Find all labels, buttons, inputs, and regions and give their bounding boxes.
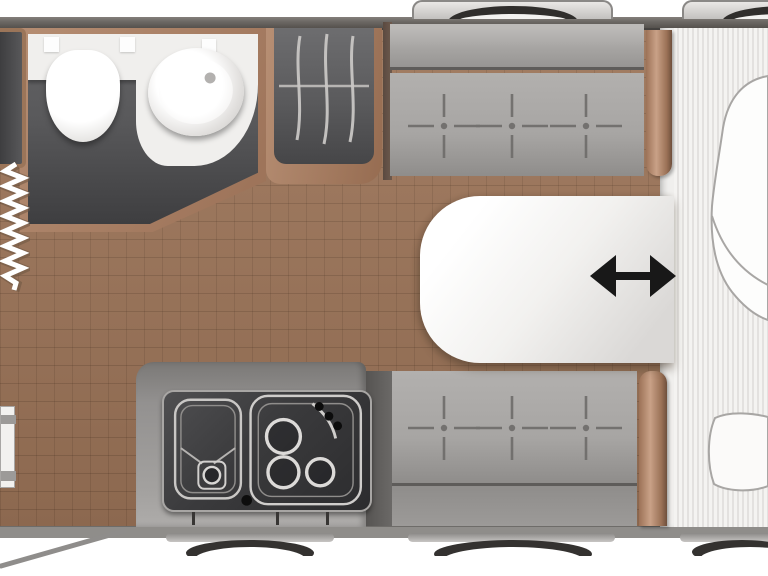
- wardrobe: [266, 28, 382, 184]
- bed-platform: [660, 28, 768, 527]
- door-swing-line: [0, 520, 150, 576]
- cushion-stitching: [392, 371, 637, 483]
- sliding-table: [420, 196, 674, 363]
- sink-drain: [204, 467, 220, 483]
- partition-wall-front: [646, 30, 672, 176]
- concertina-blind: [0, 162, 30, 294]
- ignition-button: [241, 495, 252, 506]
- wheel-arch-top-left: [412, 0, 613, 19]
- burner: [267, 420, 301, 454]
- wheel-arch-top-right: [682, 0, 768, 19]
- door-frame: [1, 471, 16, 481]
- front-cabinet: [0, 28, 26, 168]
- rear-bench-cushion: [392, 371, 637, 483]
- hob-knobs: [315, 402, 342, 430]
- skylight-icon: [120, 37, 135, 52]
- kitchen-worktop-recess: [162, 390, 372, 512]
- wheel-arch-bottom-center: [408, 530, 615, 556]
- unit-fixing: [326, 512, 329, 525]
- wardrobe-rail-and-clothes: [274, 28, 374, 164]
- caravan-floorplan: [0, 0, 768, 576]
- hob: [251, 396, 361, 504]
- entrance-door: [0, 406, 15, 488]
- slide-arrow-icon: [590, 252, 676, 300]
- unit-fixing: [192, 512, 195, 525]
- tire: [448, 6, 578, 19]
- skylight-icon: [44, 37, 59, 52]
- kitchen-unit: [136, 362, 366, 527]
- washbasin-bowl: [156, 54, 236, 127]
- burner: [307, 459, 334, 486]
- sink-and-hob: [164, 392, 370, 510]
- toilet: [46, 50, 120, 142]
- rear-bench-backrest: [392, 483, 637, 526]
- front-bench-backrest: [390, 24, 644, 70]
- door-frame: [1, 415, 16, 424]
- duvet: [712, 76, 768, 320]
- washroom-floor: [28, 34, 258, 224]
- tire: [722, 6, 768, 19]
- partition-wall-rear: [639, 371, 667, 526]
- pillow: [709, 413, 768, 490]
- cushion-stitching: [390, 73, 644, 176]
- unit-fixing: [276, 512, 279, 525]
- burner: [268, 457, 299, 488]
- bedding: [660, 28, 768, 527]
- wheel-arch-bottom-right: [680, 530, 768, 556]
- front-bench-cushion: [390, 73, 644, 176]
- wheel-arch-bottom-left: [166, 530, 334, 556]
